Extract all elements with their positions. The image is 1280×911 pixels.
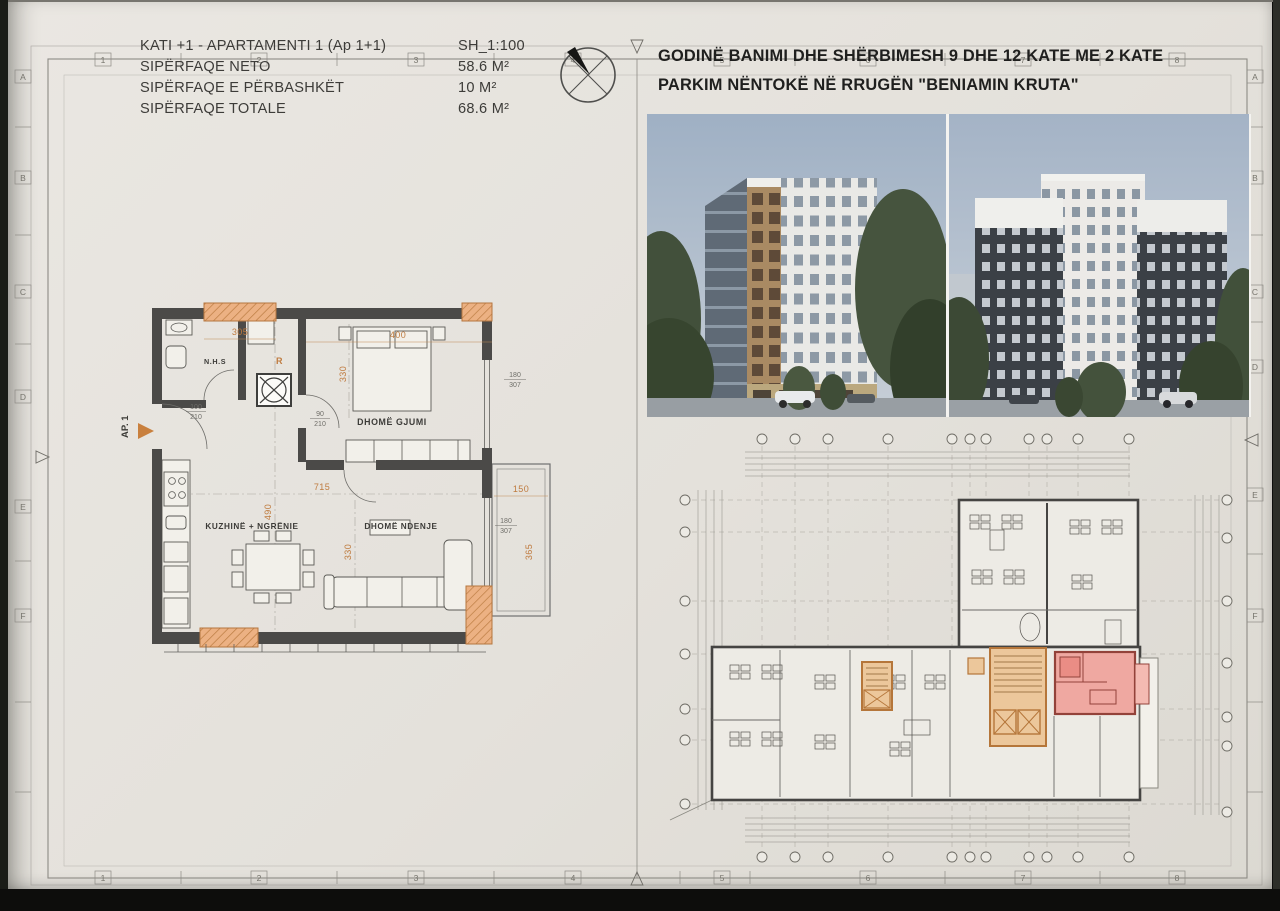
dim-400: 400: [390, 330, 406, 340]
furniture: [162, 320, 472, 628]
svg-text:1: 1: [101, 55, 106, 65]
svg-text:210: 210: [314, 421, 326, 428]
north-arrow-icon: [558, 32, 622, 118]
dim-330-living: 330: [343, 544, 353, 560]
shaft-core: [968, 658, 984, 674]
highlighted-unit: [1055, 652, 1149, 714]
room-label-kitchen: KUZHINË + NGRËNIE: [205, 521, 298, 531]
car: [1009, 395, 1039, 404]
shared-area-value: 10 M²: [458, 78, 497, 99]
svg-text:A: A: [20, 72, 26, 82]
rendering-photo-right: [949, 114, 1249, 417]
photo-edge-right: [1273, 0, 1280, 911]
svg-text:100: 100: [190, 404, 202, 411]
shared-area-label: SIPËRFAQE E PËRBASHKËT: [140, 78, 458, 99]
project-title-line2: PARKIM NËNTOKË NË RRUGËN "BENIAMIN KRUTA…: [658, 71, 1230, 100]
key-plan-building: [712, 500, 1158, 800]
svg-text:F: F: [1252, 611, 1257, 621]
room-label-bedroom: DHOMË GJUMI: [357, 417, 427, 427]
svg-text:C: C: [1252, 287, 1258, 297]
project-title: GODINË BANIMI DHE SHËRBIMESH 9 DHE 12 KA…: [658, 42, 1230, 100]
room-label-bath: N.H.S: [204, 357, 226, 366]
total-area-label: SIPËRFAQE TOTALE: [140, 99, 458, 120]
photographed-drawing-sheet: 1 2 3 4 5 6 7 8: [0, 0, 1280, 911]
wardrobe: [346, 440, 470, 462]
svg-text:8: 8: [1175, 873, 1180, 883]
rendering-photo-left: [647, 114, 946, 417]
car: [847, 394, 875, 403]
tree: [1055, 377, 1083, 417]
dim-305: 305: [232, 327, 248, 337]
unit-entry-marker: AP. 1: [120, 415, 154, 439]
svg-text:C: C: [20, 287, 26, 297]
photo-edge-left: [0, 0, 8, 911]
room-label-living: DHOMË NDENJE: [364, 521, 437, 531]
kitchen-counter: [162, 460, 190, 628]
shaft: [257, 374, 291, 406]
svg-text:A: A: [1252, 72, 1258, 82]
photo-edge-bottom: [0, 889, 1280, 911]
svg-text:6: 6: [866, 873, 871, 883]
svg-text:1: 1: [101, 873, 106, 883]
project-title-line1: GODINË BANIMI DHE SHËRBIMESH 9 DHE 12 KA…: [658, 42, 1230, 71]
svg-text:E: E: [1252, 490, 1258, 500]
stair-core-secondary: [862, 662, 892, 710]
riser-label: R: [276, 356, 283, 366]
svg-text:F: F: [20, 611, 25, 621]
svg-text:180: 180: [500, 518, 512, 525]
grid-labels-left: A B C D E F: [15, 70, 31, 792]
svg-text:4: 4: [571, 873, 576, 883]
rendering-photos: [647, 114, 1251, 417]
net-area-label: SIPËRFAQE NETO: [140, 57, 458, 78]
svg-text:B: B: [1252, 173, 1258, 183]
svg-text:5: 5: [720, 873, 725, 883]
bedroom-door-dim: 90 210: [310, 411, 330, 428]
tree: [820, 374, 846, 410]
svg-text:307: 307: [500, 528, 512, 535]
dim-490: 490: [263, 504, 273, 520]
total-area-value: 68.6 M²: [458, 99, 509, 120]
window-dim-b: 180 307: [495, 518, 517, 535]
svg-text:307: 307: [509, 382, 521, 389]
svg-text:3: 3: [414, 873, 419, 883]
svg-text:D: D: [1252, 362, 1258, 372]
apartment-title: KATI +1 - APARTAMENTI 1 (Ap 1+1): [140, 36, 458, 57]
window-dim-a: 180 307: [504, 372, 526, 389]
svg-text:2: 2: [257, 873, 262, 883]
svg-text:E: E: [20, 502, 26, 512]
svg-text:D: D: [20, 392, 26, 402]
stair-core: [990, 648, 1046, 746]
drawing-sheet-paper: 1 2 3 4 5 6 7 8: [8, 2, 1272, 889]
dim-150: 150: [513, 484, 529, 494]
dim-365: 365: [524, 544, 534, 560]
net-area-value: 58.6 M²: [458, 57, 509, 78]
svg-text:B: B: [20, 173, 26, 183]
entry-arrow-icon: [138, 423, 154, 439]
drawing-scale: SH_1:100: [458, 36, 525, 57]
dining-table: [232, 531, 314, 603]
apartment-plan: AP. 1 N.H.S DHOMË GJUMI KUZHINË + NGRËNI…: [108, 290, 608, 665]
unit-label: AP. 1: [120, 415, 131, 438]
photo-edge-top: [0, 0, 1280, 2]
svg-text:90: 90: [316, 411, 324, 418]
dim-715: 715: [314, 482, 330, 492]
svg-text:210: 210: [190, 414, 202, 421]
tower-left-dark: [975, 198, 1063, 416]
dim-330-bed: 330: [338, 366, 348, 382]
key-plan: [650, 420, 1250, 872]
svg-text:180: 180: [509, 372, 521, 379]
svg-text:7: 7: [1021, 873, 1026, 883]
